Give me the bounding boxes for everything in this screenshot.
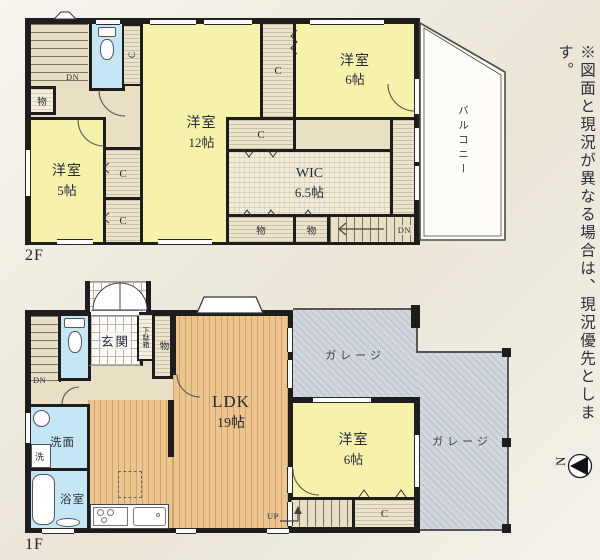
north-label: N	[553, 456, 568, 466]
garage-upper: ガレージ	[293, 308, 417, 400]
entrance-porch	[85, 281, 151, 312]
room-2f-western-5-label: 洋室 5帖	[52, 162, 82, 200]
closet-label: C	[119, 168, 126, 180]
window	[287, 328, 293, 352]
storage-label: 物	[307, 223, 317, 237]
ldk-label: LDK 19帖	[193, 390, 269, 433]
garage-post	[502, 348, 511, 357]
window	[158, 239, 212, 245]
toilet-tank-icon	[98, 27, 116, 37]
window	[414, 166, 420, 200]
stairs-2f-down-icon	[31, 24, 88, 85]
storage-label: 物	[156, 341, 170, 351]
faucet-icon	[156, 513, 160, 517]
garage-post	[502, 438, 511, 447]
wall	[168, 400, 174, 457]
closet-label: C	[381, 508, 388, 520]
wic-label: WIC 6.5帖	[295, 164, 324, 202]
down-label: DN	[398, 225, 414, 235]
toilet-tank-icon	[64, 318, 85, 328]
stairs-opening	[287, 502, 293, 526]
room-2f-western-6: 洋室 6帖	[293, 21, 417, 120]
shoe-box-label: 下駄箱	[141, 327, 151, 348]
window	[96, 19, 120, 25]
closet-label: C	[274, 65, 281, 77]
window	[313, 397, 371, 403]
floor-label-1f: 1F	[25, 536, 44, 554]
up-label: UP	[267, 511, 279, 521]
closet-label: C	[119, 215, 126, 227]
toilet-bowl-icon	[68, 331, 82, 353]
room-2f-western-6-label: 洋室 6帖	[340, 52, 370, 90]
window	[414, 435, 420, 487]
room-1f-western-6: 洋室 6帖	[290, 400, 417, 500]
down-label: DN	[66, 72, 79, 82]
stairs-1f-up-icon	[288, 497, 355, 530]
washer-label: 洗	[35, 450, 45, 463]
window	[414, 128, 420, 162]
washroom-label: 洗面	[50, 434, 75, 450]
garage-right-label: ガレージ	[432, 433, 492, 449]
room-2f-western-5: 洋室 5帖	[28, 117, 106, 245]
sink-icon	[133, 507, 166, 526]
storage-label: 物	[37, 94, 47, 108]
refrigerator-space	[118, 471, 142, 498]
garage-right: ガレージ	[417, 351, 509, 531]
window	[176, 528, 196, 534]
window	[287, 360, 293, 388]
burner-icon	[101, 517, 107, 523]
room-1f-western-6-label: 洋室 6帖	[339, 431, 369, 469]
bathroom-label: 浴室	[60, 491, 85, 507]
balcony-door-opening	[414, 79, 420, 114]
closet-2f-b: C	[103, 197, 143, 245]
room-2f-western-12-label: 洋室 12帖	[187, 114, 217, 152]
burner-icon	[97, 509, 104, 516]
down-label: DN	[33, 375, 46, 385]
bathtub-icon	[32, 474, 55, 525]
bath-drain-icon	[56, 518, 80, 527]
storage-2f-hall: 物	[28, 86, 56, 115]
window	[204, 19, 252, 25]
storage-2f-b: 物	[293, 214, 330, 245]
window	[25, 150, 31, 196]
closet-1f: C	[352, 497, 417, 530]
floor-plan-page: C 物 洋室 12帖 洋室 5帖 C C C 洋室 6帖 C WIC 6.5帖	[0, 0, 600, 560]
window	[267, 528, 289, 534]
garage-post	[411, 305, 420, 328]
window	[150, 19, 196, 25]
compass-circle	[569, 455, 592, 478]
north-arrow-icon	[570, 457, 588, 476]
door-opening	[287, 467, 293, 493]
floor-label-2f: 2F	[25, 247, 44, 265]
storage-2f-a: 物	[226, 214, 296, 245]
wall	[146, 281, 151, 312]
window	[25, 413, 31, 443]
compass-icon: N	[553, 455, 592, 478]
closet-2f-wic: C	[226, 117, 296, 152]
closet-2f-c: C	[260, 21, 296, 120]
closet-label: C	[127, 52, 137, 58]
entrance-label: 玄関	[101, 331, 130, 350]
garage-post	[502, 524, 511, 533]
disclaimer-text: ※図面と現況が異なる場合は、現況優先とします。	[553, 44, 597, 456]
burner-icon	[107, 509, 114, 516]
window	[310, 19, 384, 25]
entrance-hall: 玄関	[88, 313, 143, 366]
wall	[170, 313, 176, 375]
garage-upper-label: ガレージ	[325, 347, 385, 363]
washbasin-icon	[33, 410, 50, 427]
walk-in-closet-2f: WIC 6.5帖	[226, 149, 393, 217]
closet-label: C	[257, 129, 264, 141]
window	[57, 239, 93, 245]
stairs-2f-landing: DN	[327, 214, 417, 245]
closet-2f-a: C	[103, 147, 143, 200]
hall-2f-balcony-access	[390, 117, 417, 217]
balcony-label: バルコニー	[455, 105, 470, 178]
wall	[85, 281, 90, 312]
window	[42, 528, 74, 534]
stairs-1f-down-icon	[31, 316, 61, 382]
storage-label: 物	[256, 223, 266, 237]
entrance-door-opening	[91, 310, 139, 316]
toilet-bowl-icon	[100, 39, 114, 60]
